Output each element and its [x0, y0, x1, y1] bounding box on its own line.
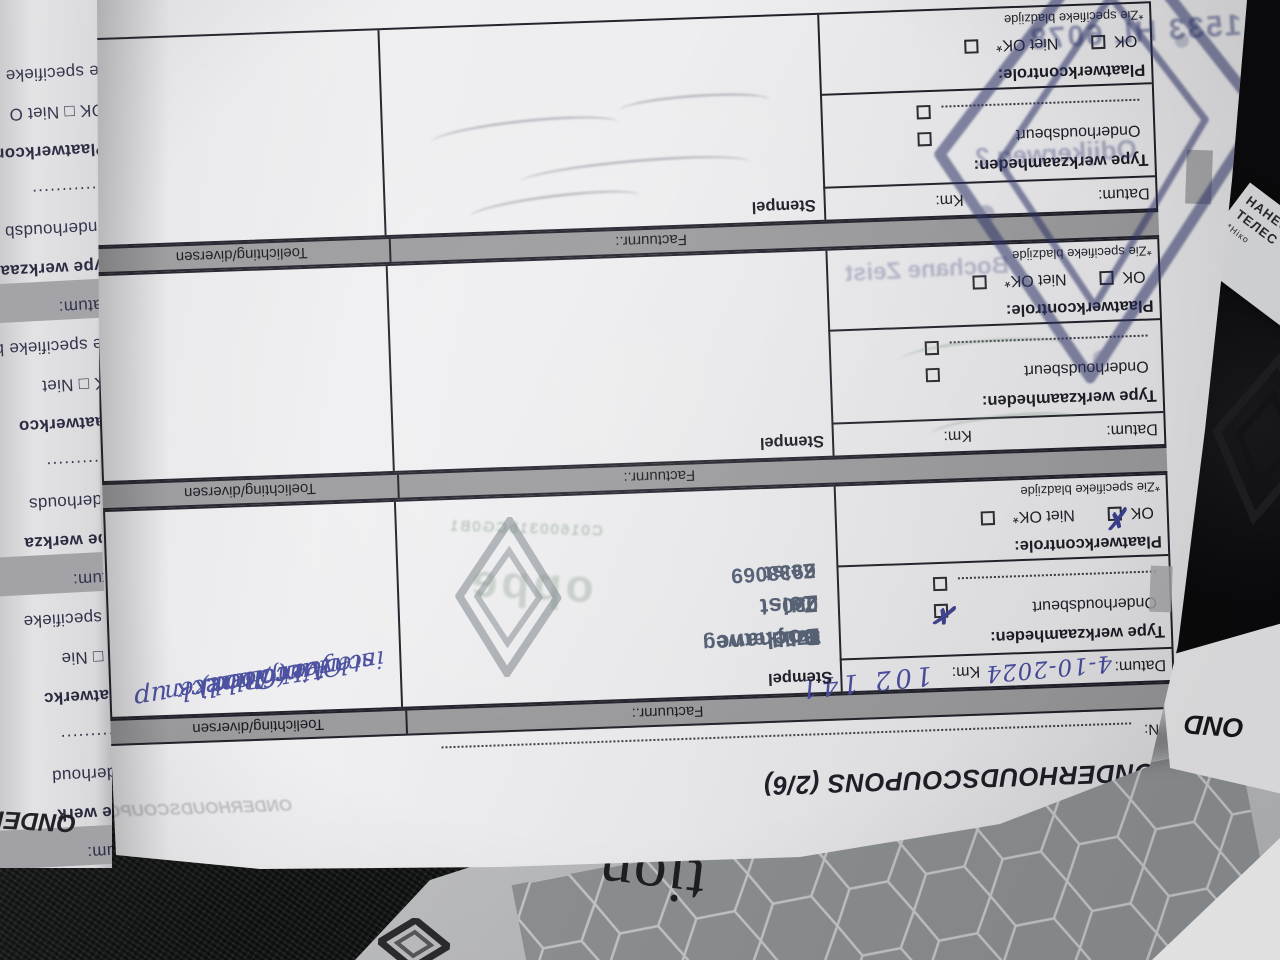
curled-pages-text: N: ········Datum:Type werkOnderhoud·····…: [0, 0, 112, 868]
curled-pages-edge: N: ········Datum:Type werkOnderhoud·····…: [0, 0, 112, 868]
photo-scene: tion OND НАНЕСТЕЛЕС*Ніко N: ········Datu…: [0, 0, 1280, 960]
previous-title-fragment: ONDER: [0, 804, 77, 838]
underlying-page-title-fragment: OND: [1183, 708, 1245, 743]
